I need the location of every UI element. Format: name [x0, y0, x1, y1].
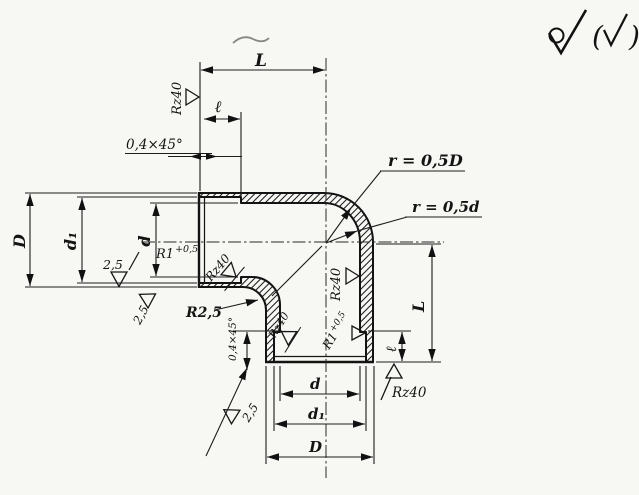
- r1-label-top: R1+0,5: [155, 244, 198, 262]
- open-paren: (: [592, 20, 604, 53]
- extension-lines: [25, 62, 441, 464]
- rz40-label: Rz40: [170, 82, 185, 116]
- miter-line: [272, 246, 322, 296]
- roughness-triangle-icon: [186, 89, 199, 105]
- dim-label-d-bottom: d: [310, 375, 321, 393]
- radius-inner-label: r = 0,5d: [412, 198, 480, 216]
- elbow-technical-drawing: ( ) L ℓ D d₁ d L ℓ d: [0, 0, 639, 495]
- roughness-triangle-icon: [386, 364, 402, 378]
- dim-label-l-top: ℓ: [214, 97, 222, 116]
- chamfer-label-bottom: 0,4×45°: [227, 317, 239, 361]
- rz40-label: Rz40: [329, 268, 344, 302]
- dim-label-D-bottom: D: [308, 438, 322, 456]
- check-icon: [604, 14, 627, 45]
- rz40-top-left: Rz40: [170, 82, 199, 116]
- chamfer-arrow-right: [206, 153, 217, 159]
- pencil-smudge: [233, 37, 269, 43]
- dim-label-L-right: L: [409, 301, 428, 313]
- drawing-sheet: ( ) L ℓ D d₁ d L ℓ d: [0, 0, 639, 495]
- roughness-label: 2,5: [239, 401, 262, 425]
- chamfer-callout-top: 0,4×45°: [125, 137, 242, 160]
- roughness-triangle-icon: [346, 268, 359, 284]
- rz40-right-wall: Rz40: [329, 268, 359, 302]
- rz40-label: Rz40: [391, 385, 427, 401]
- dim-label-d-left: d: [135, 235, 154, 246]
- surface-finish-note: ( ): [592, 14, 639, 53]
- dim-label-l-right: ℓ: [384, 346, 400, 352]
- roughness-triangle-icon: [111, 272, 127, 287]
- radius-outer-label: r = 0,5D: [388, 151, 463, 170]
- roughness-25-left-top: 2,5: [102, 252, 139, 287]
- fillet-callout: R2,5: [185, 300, 258, 321]
- radius-outer-callout: r = 0,5D: [326, 151, 465, 243]
- rz40-bottom-right: Rz40: [381, 364, 427, 401]
- rz40-label: Rz40: [202, 251, 233, 285]
- center-lines: [142, 58, 444, 478]
- surface-finish-icon: [549, 10, 586, 53]
- chamfer-label-top: 0,4×45°: [126, 137, 183, 153]
- r1-label-bottom: R1+0,5: [318, 310, 352, 353]
- fillet-label: R2,5: [185, 305, 222, 321]
- roughness-label: 2,5: [102, 257, 123, 272]
- dim-label-d1-bottom: d₁: [308, 405, 325, 423]
- dim-label-L-top: L: [254, 51, 267, 71]
- roughness-25-bottom-left: 2,5: [206, 368, 261, 456]
- dim-label-d1-left: d₁: [61, 232, 80, 250]
- roughness-25-left-bottom: 2,5: [126, 287, 159, 327]
- dim-label-D-left: D: [10, 234, 29, 249]
- chamfer-arrow-left: [190, 153, 201, 159]
- close-paren: ): [628, 20, 639, 53]
